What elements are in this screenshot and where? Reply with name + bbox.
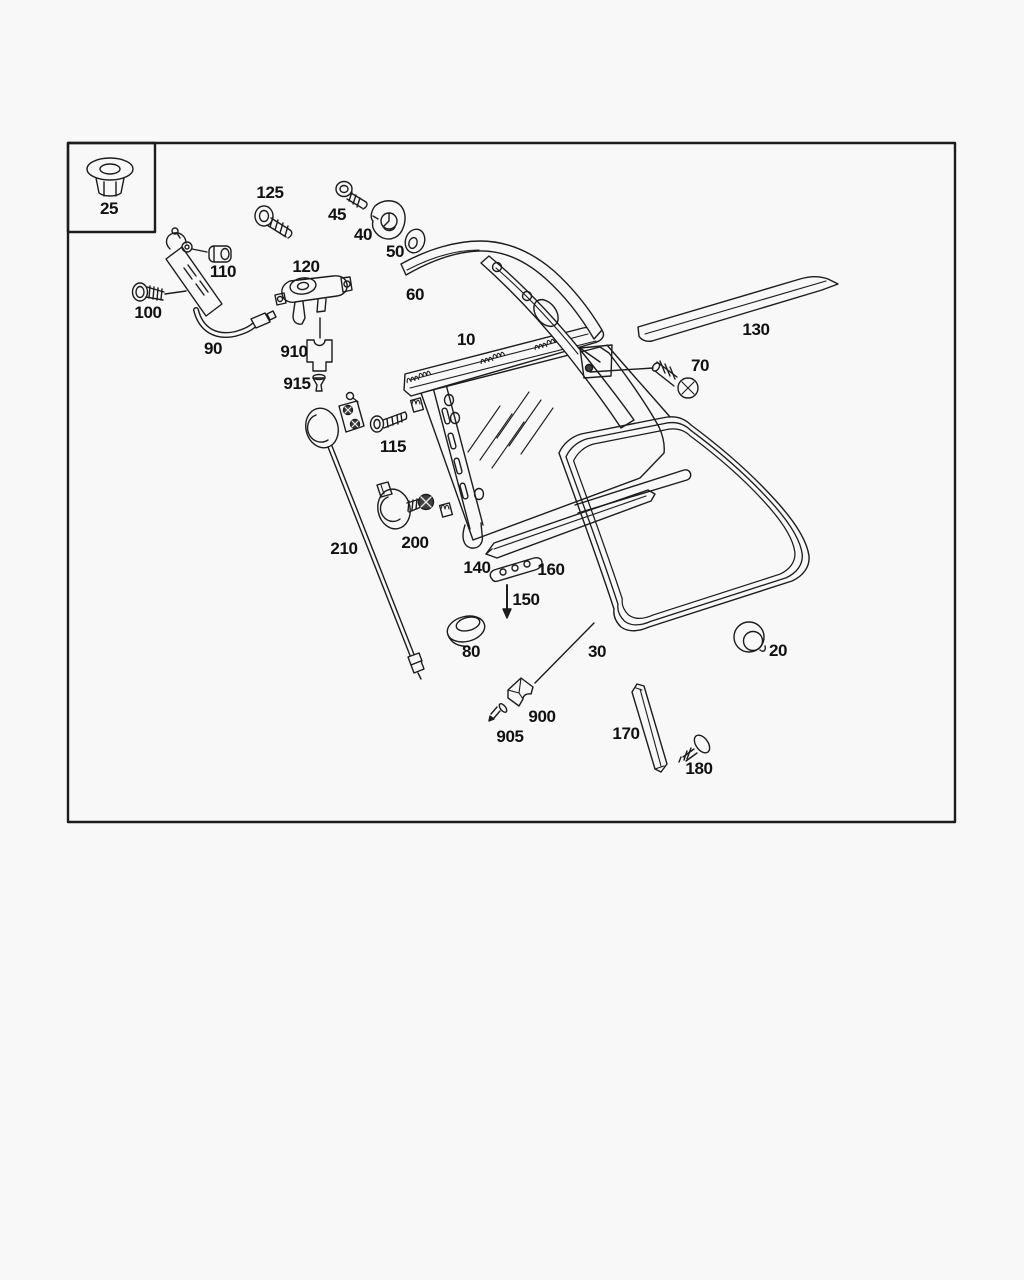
part-label-50: 50	[386, 242, 404, 262]
part-115-drawing	[371, 412, 407, 432]
part-50-drawing	[402, 227, 427, 256]
part-label-200: 200	[401, 533, 428, 553]
part-125-drawing	[255, 206, 292, 238]
part-label-140: 140	[463, 558, 490, 578]
part-label-160: 160	[537, 560, 564, 580]
part-label-60: 60	[406, 285, 424, 305]
part-110-drawing	[192, 246, 231, 262]
part-label-25: 25	[100, 199, 118, 219]
part-label-70: 70	[691, 356, 709, 376]
parts-diagram-canvas	[0, 0, 1024, 1280]
part-60-drawing	[401, 241, 602, 339]
parts-diagram-page: 25 125 45 40 50 60 110 100 120 90 910 91…	[0, 0, 1024, 1280]
part-200-drawing	[374, 482, 433, 532]
part-label-90: 90	[204, 339, 222, 359]
part-label-30: 30	[588, 642, 606, 662]
part-label-40: 40	[354, 225, 372, 245]
part-label-150: 150	[512, 590, 539, 610]
part-label-115: 115	[380, 437, 406, 457]
part-180-drawing	[679, 732, 713, 762]
part-100-drawing	[133, 283, 187, 301]
part-label-210: 210	[330, 539, 357, 559]
part-20-drawing	[734, 622, 765, 652]
part-label-130: 130	[742, 320, 769, 340]
part-915-drawing	[313, 375, 325, 392]
part-label-915: 915	[283, 374, 310, 394]
part-25-drawing	[87, 158, 133, 196]
part-label-900: 900	[528, 707, 555, 727]
part-label-10: 10	[457, 330, 475, 350]
part-905-drawing	[489, 702, 508, 721]
part-label-20: 20	[769, 641, 787, 661]
part-label-120: 120	[292, 257, 319, 277]
part-label-80: 80	[462, 642, 480, 662]
part-label-180: 180	[685, 759, 712, 779]
part-label-110: 110	[210, 262, 236, 282]
part-900-drawing	[508, 678, 533, 706]
part-130-drawing	[638, 277, 838, 342]
part-label-45: 45	[328, 205, 346, 225]
part-150-arrow	[503, 585, 511, 618]
part-910-drawing	[307, 318, 332, 371]
part-40-drawing	[371, 201, 405, 239]
part-label-100: 100	[134, 303, 161, 323]
part-160-drawing	[490, 558, 542, 582]
part-label-125: 125	[256, 183, 283, 203]
part-120-drawing	[275, 276, 352, 324]
part-label-170: 170	[612, 724, 639, 744]
part-label-905: 905	[496, 727, 523, 747]
part-label-910: 910	[280, 342, 307, 362]
